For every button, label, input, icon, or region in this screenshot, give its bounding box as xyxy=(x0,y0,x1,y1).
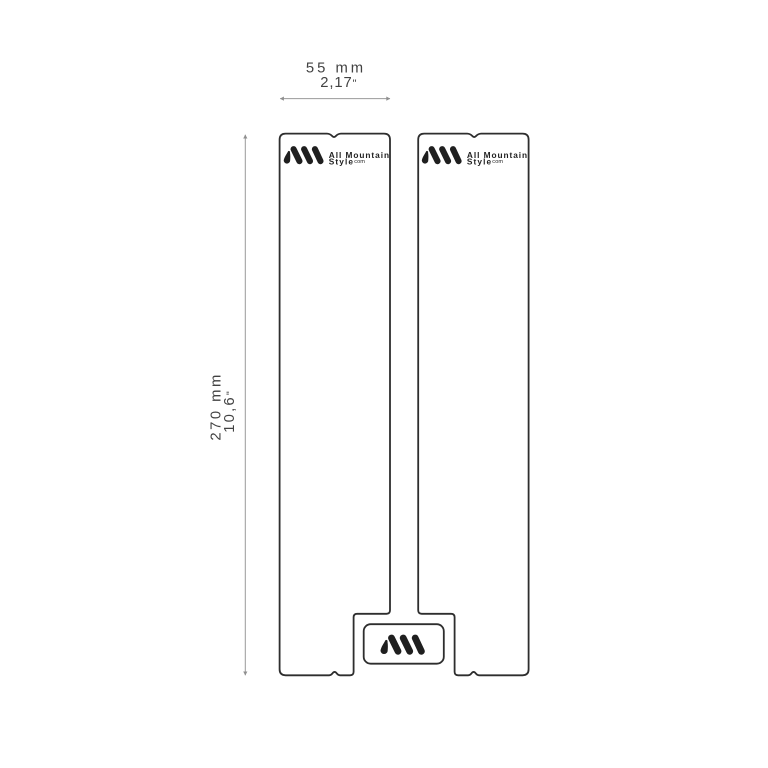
svg-text:com: com xyxy=(492,159,503,165)
svg-text:2,17": 2,17" xyxy=(320,75,357,91)
svg-text:Style: Style xyxy=(329,157,354,167)
svg-text:com: com xyxy=(354,159,365,165)
svg-text:Style: Style xyxy=(467,157,492,167)
svg-text:10,6": 10,6" xyxy=(222,389,238,433)
